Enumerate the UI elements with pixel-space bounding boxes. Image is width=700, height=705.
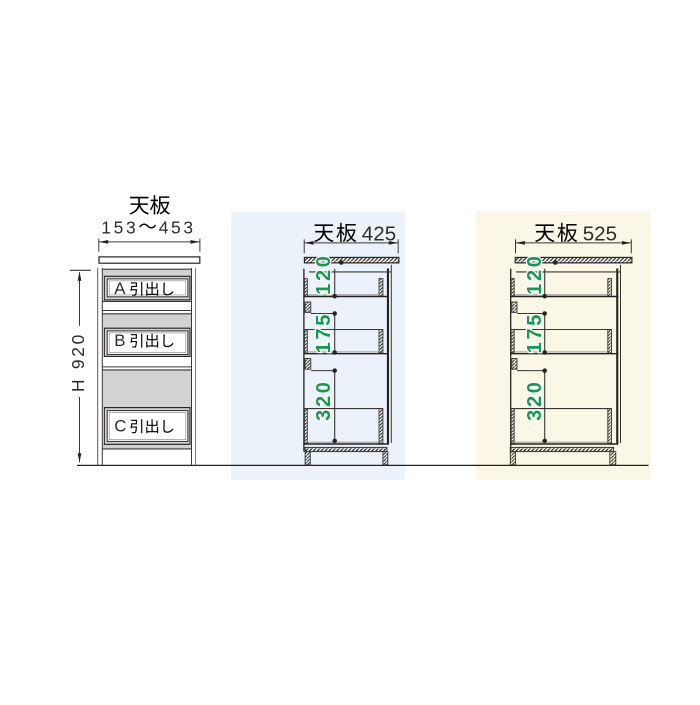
- svg-text:H 920: H 920: [68, 332, 88, 392]
- svg-text:A: A: [114, 279, 126, 298]
- svg-text:320: 320: [313, 379, 335, 420]
- svg-text:120: 120: [524, 253, 546, 294]
- svg-text:175: 175: [524, 312, 546, 353]
- svg-text:175: 175: [313, 312, 335, 353]
- svg-text:525: 525: [583, 223, 617, 246]
- svg-text:453: 453: [159, 217, 196, 237]
- svg-text:153: 153: [101, 217, 138, 237]
- svg-text:C: C: [114, 416, 126, 435]
- svg-text:B: B: [114, 331, 125, 350]
- svg-text:320: 320: [524, 379, 546, 420]
- svg-text:120: 120: [313, 253, 335, 294]
